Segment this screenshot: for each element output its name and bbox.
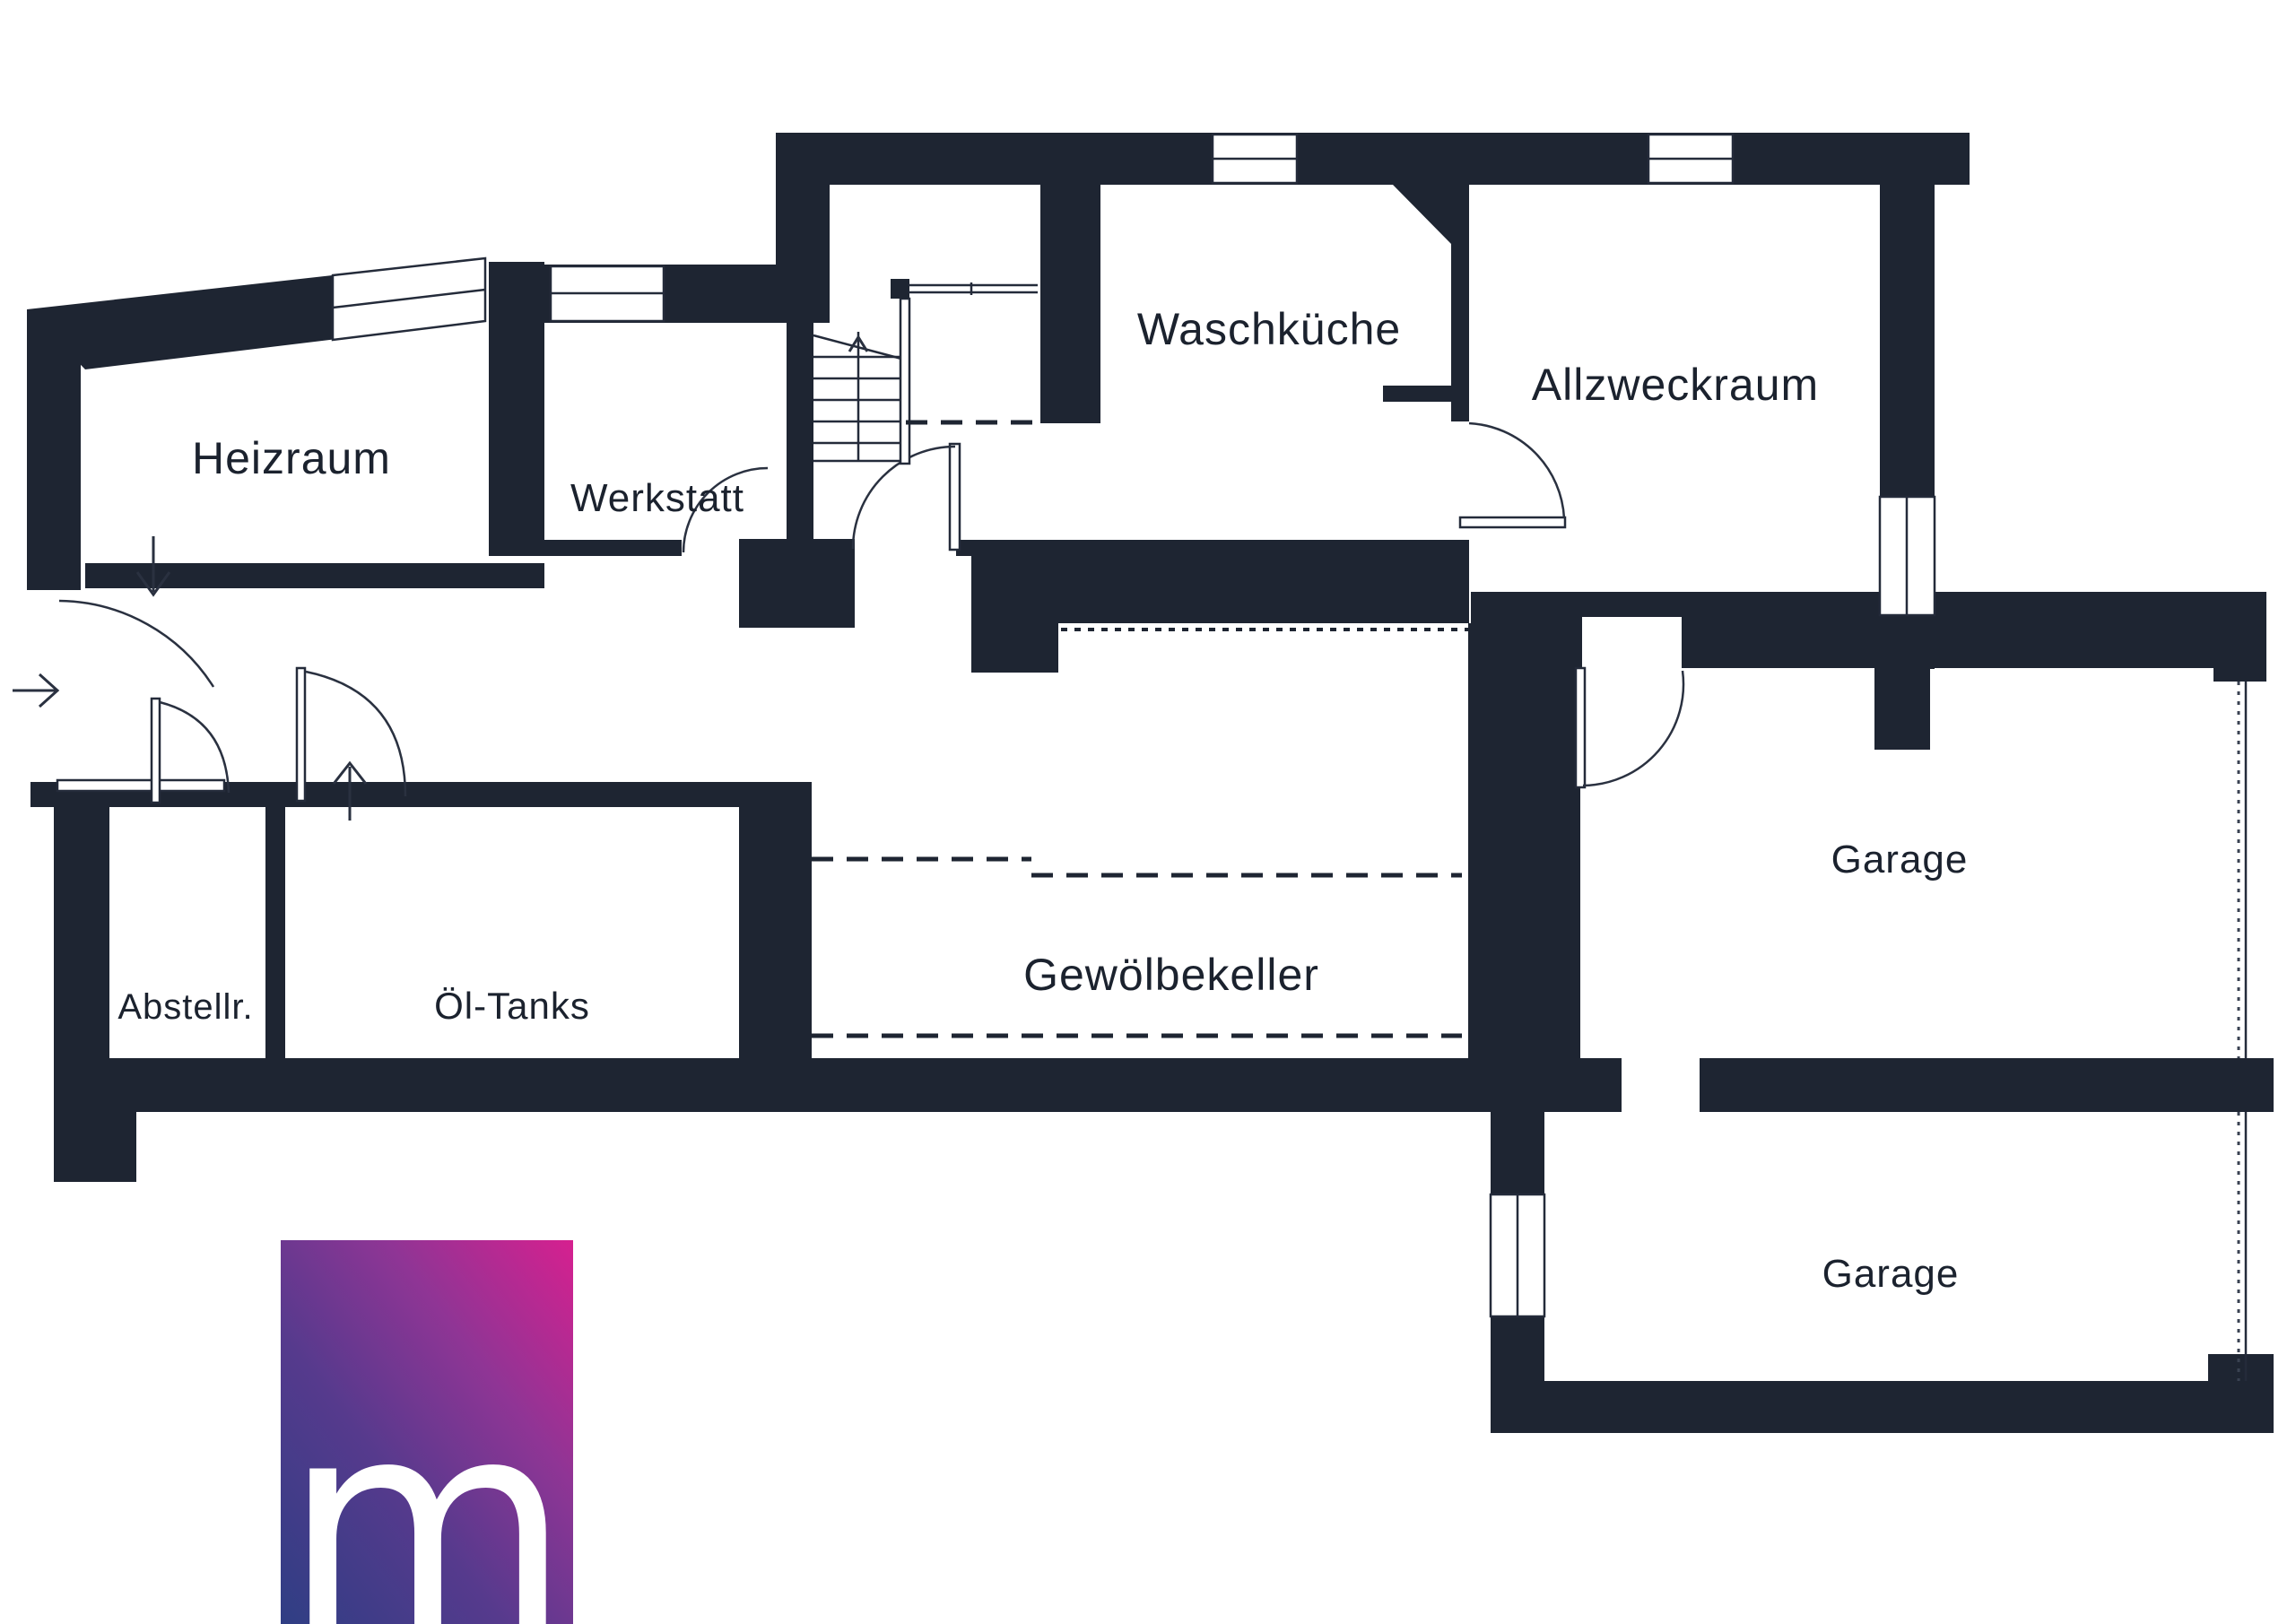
wall-abstell-oel-divider [265,807,285,1058]
stair-treads [813,332,903,461]
door-entrance-arc [59,601,213,687]
label-oeltanks: Öl-Tanks [434,985,590,1027]
window-north-1 [1213,135,1297,183]
wall-werkstatt-west [489,262,544,556]
label-gewoelbekeller: Gewölbekeller [1023,950,1319,1000]
wall-garage1-pillar [1874,668,1930,750]
windows [333,135,1935,1316]
window-garage2-west [1491,1194,1544,1316]
door-allzweckraum-arc [1469,423,1564,518]
garage1-doorway-gap [1582,617,1682,668]
window-allzweckraum-east [1880,497,1935,615]
wall-stairblock-west [776,185,830,323]
wall-west-exterior [27,309,81,590]
wall-keller-north-band [1058,556,1469,623]
garage-passage-gap [1622,1058,1700,1112]
wall-garage1-ne-corner [2213,592,2266,682]
stair-post [891,279,909,299]
wall-south-band-garages [1700,1058,2274,1112]
door-garage1 [1576,668,1683,787]
wall-garage2-se-corner [2208,1354,2274,1433]
floorplan-canvas: Heizraum Werkstatt Waschküche Allzweckra… [0,0,2296,1624]
wall-waschkueche-west [1040,185,1100,423]
wall-werkstatt-east [787,308,813,556]
wall-keller-east [1468,623,1530,1063]
wall-north [776,133,1970,185]
wall-allzweckraum-east [1880,185,1935,497]
wall-keller-west [739,782,812,1060]
label-garage-2: Garage [1822,1252,1960,1296]
label-werkstatt: Werkstatt [570,476,744,520]
stair-railing [900,299,909,464]
wall-keller-northwest-block [739,539,855,628]
entry-arrow-icon [13,674,57,707]
door-garage1-arc [1583,671,1683,786]
wall-keller-north-thin [956,540,1469,556]
wall-werkstatt-south-a [544,540,682,556]
label-allzweckraum: Allzweckraum [1532,360,1819,410]
door-entrance [57,601,224,791]
wall-keller-north-chunk [971,556,1058,673]
window-north-2 [1648,135,1733,183]
wall-garage1-west [1530,628,1580,1063]
label-abstellraum: Abstellr. [117,987,253,1027]
label-heizraum: Heizraum [192,433,391,483]
label-waschkueche: Waschküche [1137,304,1401,354]
wall-waschkueche-south-stub [1383,386,1451,402]
logo: m [281,1240,573,1624]
logo-letter: m [283,1356,570,1624]
wall-abstellraum-west [54,807,109,1058]
door-abstellraum-leaf [152,699,160,803]
garage-door-lines [2239,682,2246,1381]
door-keller-leaf [950,444,960,550]
window-heizraum-slant [333,258,485,340]
wall-garage2-south [1491,1381,2274,1433]
door-entrance-leaf [57,780,224,791]
door-garage1-leaf [1576,668,1585,787]
door-allzweckraum-leaf [1460,517,1565,527]
door-oeltanks-arc [306,672,405,796]
window-werkstatt [551,266,664,321]
stair-head-partition [909,282,1038,295]
staircase [813,279,1040,464]
door-oeltanks-leaf [297,668,305,801]
label-garage-1: Garage [1831,838,1969,881]
wall-south-band [54,1058,1622,1112]
door-allzweckraum [1460,423,1565,527]
